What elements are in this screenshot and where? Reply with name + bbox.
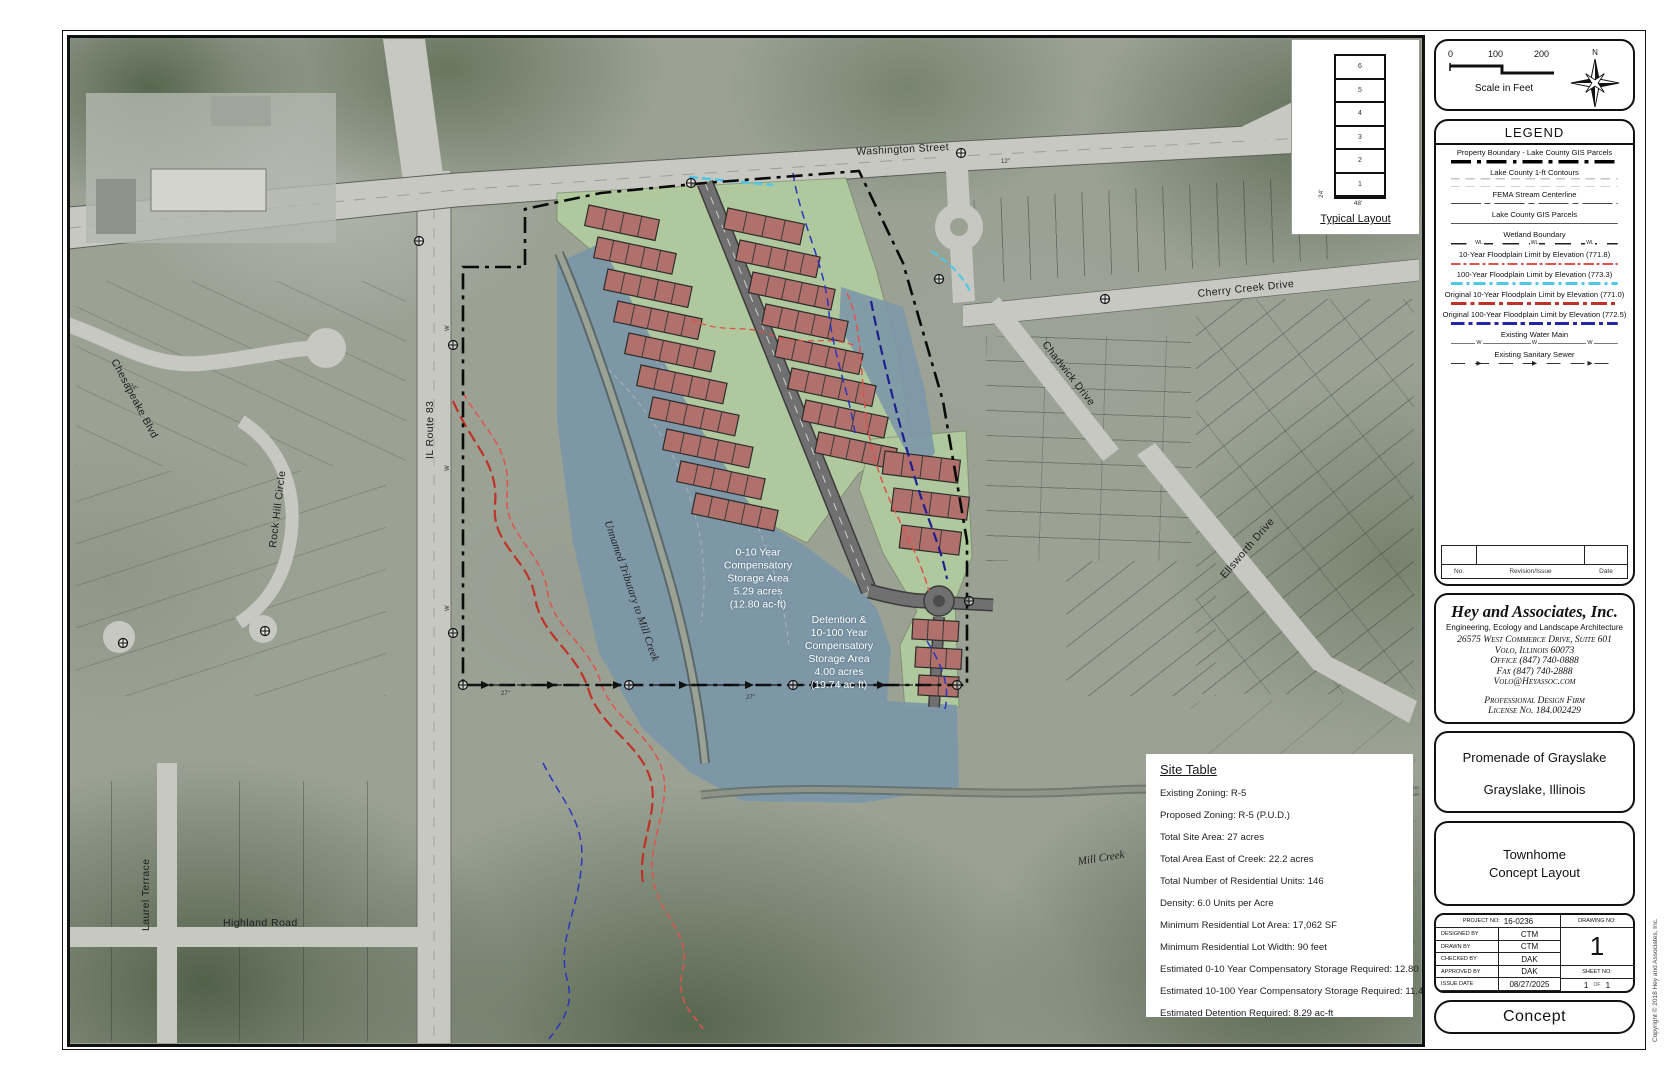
legend-line-sample: WLWLWL — [1451, 240, 1618, 247]
legend-entry-label: Wetland Boundary — [1442, 230, 1627, 239]
revision-date-label: Date — [1585, 568, 1627, 575]
legend-entry-label: Existing Sanitary Sewer — [1442, 350, 1627, 359]
legend-entry: Wetland Boundary WLWLWL — [1442, 230, 1627, 247]
manhole-symbol — [449, 629, 458, 638]
legend-entry: Existing Sanitary Sewer ▶▶▶ — [1442, 350, 1627, 367]
legend-line-marker: W — [1586, 341, 1593, 346]
legend-line-sample — [1451, 280, 1618, 287]
legend-entry: Lake County 1-ft Contours — [1442, 168, 1627, 187]
sheet-title-line1: Townhome — [1436, 847, 1633, 862]
credit-value: DAK — [1498, 953, 1560, 966]
firm-email: Volo@Heyassoc.com — [1436, 677, 1633, 688]
drawing-info-table: PROJECT NO: 16-0236 DRAWING NO: DESIGNED… — [1434, 913, 1635, 993]
legend-entry-label: 10-Year Floodplain Limit by Elevation (7… — [1442, 250, 1627, 259]
north-arrow-icon: N — [1565, 45, 1625, 109]
legend-line-marker: W — [1475, 341, 1482, 346]
drawing-no-value: 1 — [1561, 928, 1633, 965]
unit-depth-label: 24' — [1318, 190, 1325, 198]
revision-label-row: No. Revision/Issue Date — [1441, 565, 1628, 579]
map-viewport: 6 5 4 3 2 1 24' 48' Typical Layout — [67, 35, 1425, 1047]
drawing-no-label: DRAWING NO: — [1560, 915, 1633, 928]
typical-unit-number: 6 — [1336, 56, 1384, 80]
site-table-row: Total Number of Residential Units: 146 — [1160, 876, 1413, 887]
firm-office-phone: Office (847) 740-0888 — [1436, 656, 1633, 667]
legend-title: LEGEND — [1436, 121, 1633, 145]
legend-line-marker: WL — [1530, 241, 1540, 246]
credit-value: CTM — [1498, 928, 1560, 941]
concept-stamp: Concept — [1434, 1000, 1635, 1034]
manhole-symbol — [261, 627, 270, 636]
legend-line-sample — [1451, 320, 1618, 327]
legend-line-sample: ▶▶▶ — [1451, 360, 1618, 367]
credit-value: CTM — [1498, 941, 1560, 954]
legend-entry: Original 10-Year Floodplain Limit by Ele… — [1442, 290, 1627, 307]
firm-license-line: License No. 184.002429 — [1436, 706, 1633, 717]
legend-entry: Property Boundary - Lake County GIS Parc… — [1442, 148, 1627, 165]
legend-line-sample — [1451, 178, 1618, 187]
site-table-row: Estimated 10-100 Year Compensatory Stora… — [1160, 986, 1413, 997]
manhole-symbol — [953, 681, 962, 690]
legend-entry-label: Existing Water Main — [1442, 330, 1627, 339]
project-no-label: PROJECT NO: — [1463, 918, 1500, 924]
legend-entry: FEMA Stream Centerline — [1442, 190, 1627, 207]
site-table-row: Density: 6.0 Units per Acre — [1160, 898, 1413, 909]
project-no-value: 16-0236 — [1504, 917, 1533, 926]
legend-entry-label: Lake County 1-ft Contours — [1442, 168, 1627, 177]
credit-label: APPROVED BY — [1436, 966, 1498, 979]
credit-value: 08/27/2025 — [1498, 978, 1560, 991]
manhole-symbol — [935, 275, 944, 284]
manhole-symbol — [789, 681, 798, 690]
site-table-row: Minimum Residential Lot Width: 90 feet — [1160, 942, 1413, 953]
manhole-symbol — [1101, 295, 1110, 304]
revision-empty-row — [1441, 545, 1628, 565]
revision-no-label: No. — [1442, 568, 1476, 575]
commercial-buildings — [86, 93, 336, 243]
typical-unit-number: 2 — [1336, 150, 1384, 174]
project-no-cell: PROJECT NO: 16-0236 — [1436, 915, 1560, 928]
typical-layout-inset: 6 5 4 3 2 1 24' 48' Typical Layout — [1291, 39, 1420, 235]
site-table: Site Table Existing Zoning: R-5 Proposed… — [1146, 754, 1413, 1017]
typical-layout-title: Typical Layout — [1292, 213, 1419, 225]
legend-line-marker: ▶ — [1476, 361, 1483, 366]
legend-line-sample — [1451, 260, 1618, 267]
manhole-symbol — [119, 639, 128, 648]
legend-line-marker: W — [1531, 341, 1538, 346]
legend-entry-label: Original 100-Year Floodplain Limit by El… — [1442, 310, 1627, 319]
revision-table: No. Revision/Issue Date — [1441, 545, 1628, 579]
firm-tagline: Engineering, Ecology and Landscape Archi… — [1436, 623, 1633, 632]
typical-unit-number: 4 — [1336, 103, 1384, 127]
legend-box: LEGEND Property Boundary - Lake County G… — [1434, 119, 1635, 586]
legend-line-marker: ▶ — [1531, 361, 1538, 366]
manhole-symbol — [459, 681, 468, 690]
manhole-symbol — [957, 149, 966, 158]
typical-unit-number: 3 — [1336, 127, 1384, 151]
legend-entry: Original 100-Year Floodplain Limit by El… — [1442, 310, 1627, 327]
firm-name: Hey and Associates, Inc. — [1436, 602, 1633, 622]
credit-value: DAK — [1498, 966, 1560, 979]
project-name-block: Promenade of Grayslake Grayslake, Illino… — [1434, 731, 1635, 813]
legend-line-sample: WWW — [1451, 340, 1618, 347]
sheet-of-separator: OF — [1594, 982, 1601, 988]
legend-line-sample — [1451, 200, 1618, 207]
legend-line-marker: ▶ — [1587, 361, 1594, 366]
legend-entry-label: Original 10-Year Floodplain Limit by Ele… — [1442, 290, 1627, 299]
manhole-symbol — [625, 681, 634, 690]
copyright-text: Copyright © 2018 Hey and Associates, Inc… — [1652, 918, 1659, 1042]
site-table-title: Site Table — [1160, 762, 1413, 777]
firm-title-block: Hey and Associates, Inc. Engineering, Ec… — [1434, 593, 1635, 724]
legend-entry-label: Property Boundary - Lake County GIS Parc… — [1442, 148, 1627, 157]
sheet-of-cell: 1 OF 1 — [1561, 979, 1633, 991]
sheet-title-line2: Concept Layout — [1436, 865, 1633, 880]
firm-fax: Fax (847) 740-2888 — [1436, 667, 1633, 678]
legend-entries: Property Boundary - Lake County GIS Parc… — [1436, 148, 1633, 367]
firm-address: 26575 West Commerce Drive, Suite 601 — [1436, 635, 1633, 646]
sheet-number: 1 — [1584, 980, 1589, 990]
site-table-row: Minimum Residential Lot Area: 17,062 SF — [1160, 920, 1413, 931]
typical-unit-stack: 6 5 4 3 2 1 — [1334, 54, 1386, 199]
legend-entry-label: Lake County GIS Parcels — [1442, 210, 1627, 219]
manhole-symbol — [449, 341, 458, 350]
legend-entry: Existing Water Main WWW — [1442, 330, 1627, 347]
manhole-symbol — [415, 237, 424, 246]
legend-entry: 100-Year Floodplain Limit by Elevation (… — [1442, 270, 1627, 287]
manhole-symbol — [687, 179, 696, 188]
credit-label: DRAWN BY — [1436, 941, 1498, 954]
site-table-row: Total Site Area: 27 acres — [1160, 832, 1413, 843]
scale-tick-0: 0 — [1448, 49, 1453, 59]
scale-bar-label: Scale in Feet — [1444, 83, 1564, 94]
typical-unit-number: 1 — [1336, 174, 1384, 198]
credit-label: ISSUE DATE — [1436, 978, 1498, 991]
sheet-no-label: SHEET NO: — [1561, 966, 1633, 979]
credit-label: CHECKED BY — [1436, 953, 1498, 966]
townhome-building — [915, 647, 962, 669]
scale-tick-200: 200 — [1534, 49, 1549, 59]
legend-line-marker: WL — [1474, 241, 1484, 246]
site-table-row: Estimated 0-10 Year Compensatory Storage… — [1160, 964, 1413, 975]
legend-line-sample — [1451, 220, 1618, 227]
site-table-row: Proposed Zoning: R-5 (P.U.D.) — [1160, 810, 1413, 821]
plan-sheet: 6 5 4 3 2 1 24' 48' Typical Layout — [62, 30, 1646, 1050]
credit-label: DESIGNED BY — [1436, 928, 1498, 941]
site-table-row: Existing Zoning: R-5 — [1160, 788, 1413, 799]
townhome-building — [912, 619, 959, 641]
firm-city: Volo, Illinois 60073 — [1436, 646, 1633, 657]
sheet-title-block: Townhome Concept Layout — [1434, 821, 1635, 906]
manhole-symbol — [965, 597, 974, 606]
legend-entry: 10-Year Floodplain Limit by Elevation (7… — [1442, 250, 1627, 267]
site-table-row: Estimated Detention Required: 8.29 ac-ft — [1160, 1008, 1413, 1019]
scale-bar-graphic — [1446, 63, 1562, 77]
drawing-no-column: 1 SHEET NO: 1 OF 1 — [1560, 928, 1633, 991]
sheet-total: 1 — [1605, 980, 1610, 990]
unit-width-label: 48' — [1334, 200, 1382, 207]
svg-text:N: N — [1592, 48, 1598, 57]
firm-design-firm-line: Professional Design Firm — [1436, 696, 1633, 707]
legend-entry: Lake County GIS Parcels — [1442, 210, 1627, 227]
map-content: 6 5 4 3 2 1 24' 48' Typical Layout — [67, 35, 1425, 1047]
scale-tick-100: 100 — [1488, 49, 1503, 59]
project-name: Promenade of Grayslake — [1436, 750, 1633, 765]
project-location: Grayslake, Illinois — [1436, 782, 1633, 797]
scale-bar-box: 0 100 200 Scale in Feet N — [1434, 39, 1635, 111]
legend-line-sample — [1451, 158, 1618, 165]
site-table-row: Total Area East of Creek: 22.2 acres — [1160, 854, 1413, 865]
typical-unit-number: 5 — [1336, 80, 1384, 104]
legend-entry-label: 100-Year Floodplain Limit by Elevation (… — [1442, 270, 1627, 279]
legend-line-sample — [1451, 300, 1618, 307]
credits-grid: DESIGNED BY CTM DRAWN BY CTM CHECKED BY … — [1436, 928, 1560, 991]
legend-line-marker: WL — [1585, 241, 1595, 246]
revision-issue-label: Revision/Issue — [1476, 568, 1585, 575]
legend-entry-label: FEMA Stream Centerline — [1442, 190, 1627, 199]
